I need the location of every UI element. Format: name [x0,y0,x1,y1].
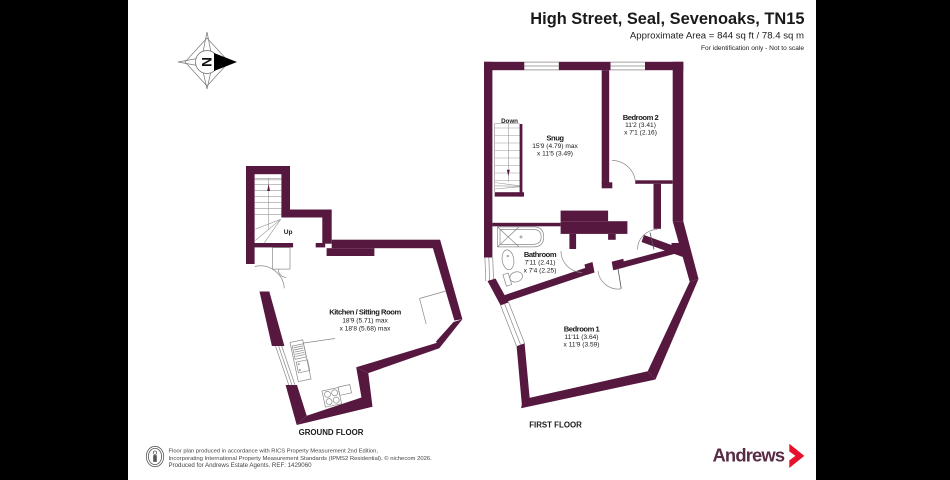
svg-text:x 7'4 (2.25): x 7'4 (2.25) [524,267,557,274]
svg-text:Snug: Snug [546,133,564,142]
svg-text:x 11'5 (3.49): x 11'5 (3.49) [537,150,573,157]
svg-text:7'11 (2.41): 7'11 (2.41) [525,260,556,267]
svg-text:Down: Down [501,118,518,125]
svg-text:15'9 (4.79) max: 15'9 (4.79) max [532,143,578,150]
svg-text:x 11'9 (3.59): x 11'9 (3.59) [564,342,600,349]
svg-text:GROUND FLOOR: GROUND FLOOR [299,428,364,437]
svg-text:FIRST FLOOR: FIRST FLOOR [529,421,582,430]
svg-text:Kitchen / Sitting Room: Kitchen / Sitting Room [329,307,401,316]
svg-text:Up: Up [284,229,293,236]
svg-text:18'9 (5.71) max: 18'9 (5.71) max [342,318,388,325]
svg-text:For identification only - Not: For identification only - Not to scale [701,45,804,52]
svg-text:Bedroom 2: Bedroom 2 [623,113,659,122]
svg-text:Andrews: Andrews [713,445,785,466]
svg-text:Produced for Andrews Estate Ag: Produced for Andrews Estate Agents. REF:… [169,462,313,469]
svg-text:Approximate Area = 844 sq ft /: Approximate Area = 844 sq ft / 78.4 sq m [630,31,804,42]
svg-text:x 18'8 (5.68) max: x 18'8 (5.68) max [340,326,391,333]
svg-text:x 7'1 (2.16): x 7'1 (2.16) [624,130,657,137]
svg-text:N: N [199,57,214,67]
svg-text:11'11 (3.64): 11'11 (3.64) [564,334,598,341]
svg-text:Floor plan produced in accorda: Floor plan produced in accordance with R… [169,449,379,455]
svg-text:Incorporating International Pr: Incorporating International Property Mea… [169,455,433,462]
svg-text:Bathroom: Bathroom [524,250,557,259]
svg-text:High Street, Seal, Sevenoaks,: High Street, Seal, Sevenoaks, TN15 [530,10,804,28]
svg-text:11'2 (3.41): 11'2 (3.41) [625,122,656,129]
svg-text:Bedroom 1: Bedroom 1 [564,325,601,334]
